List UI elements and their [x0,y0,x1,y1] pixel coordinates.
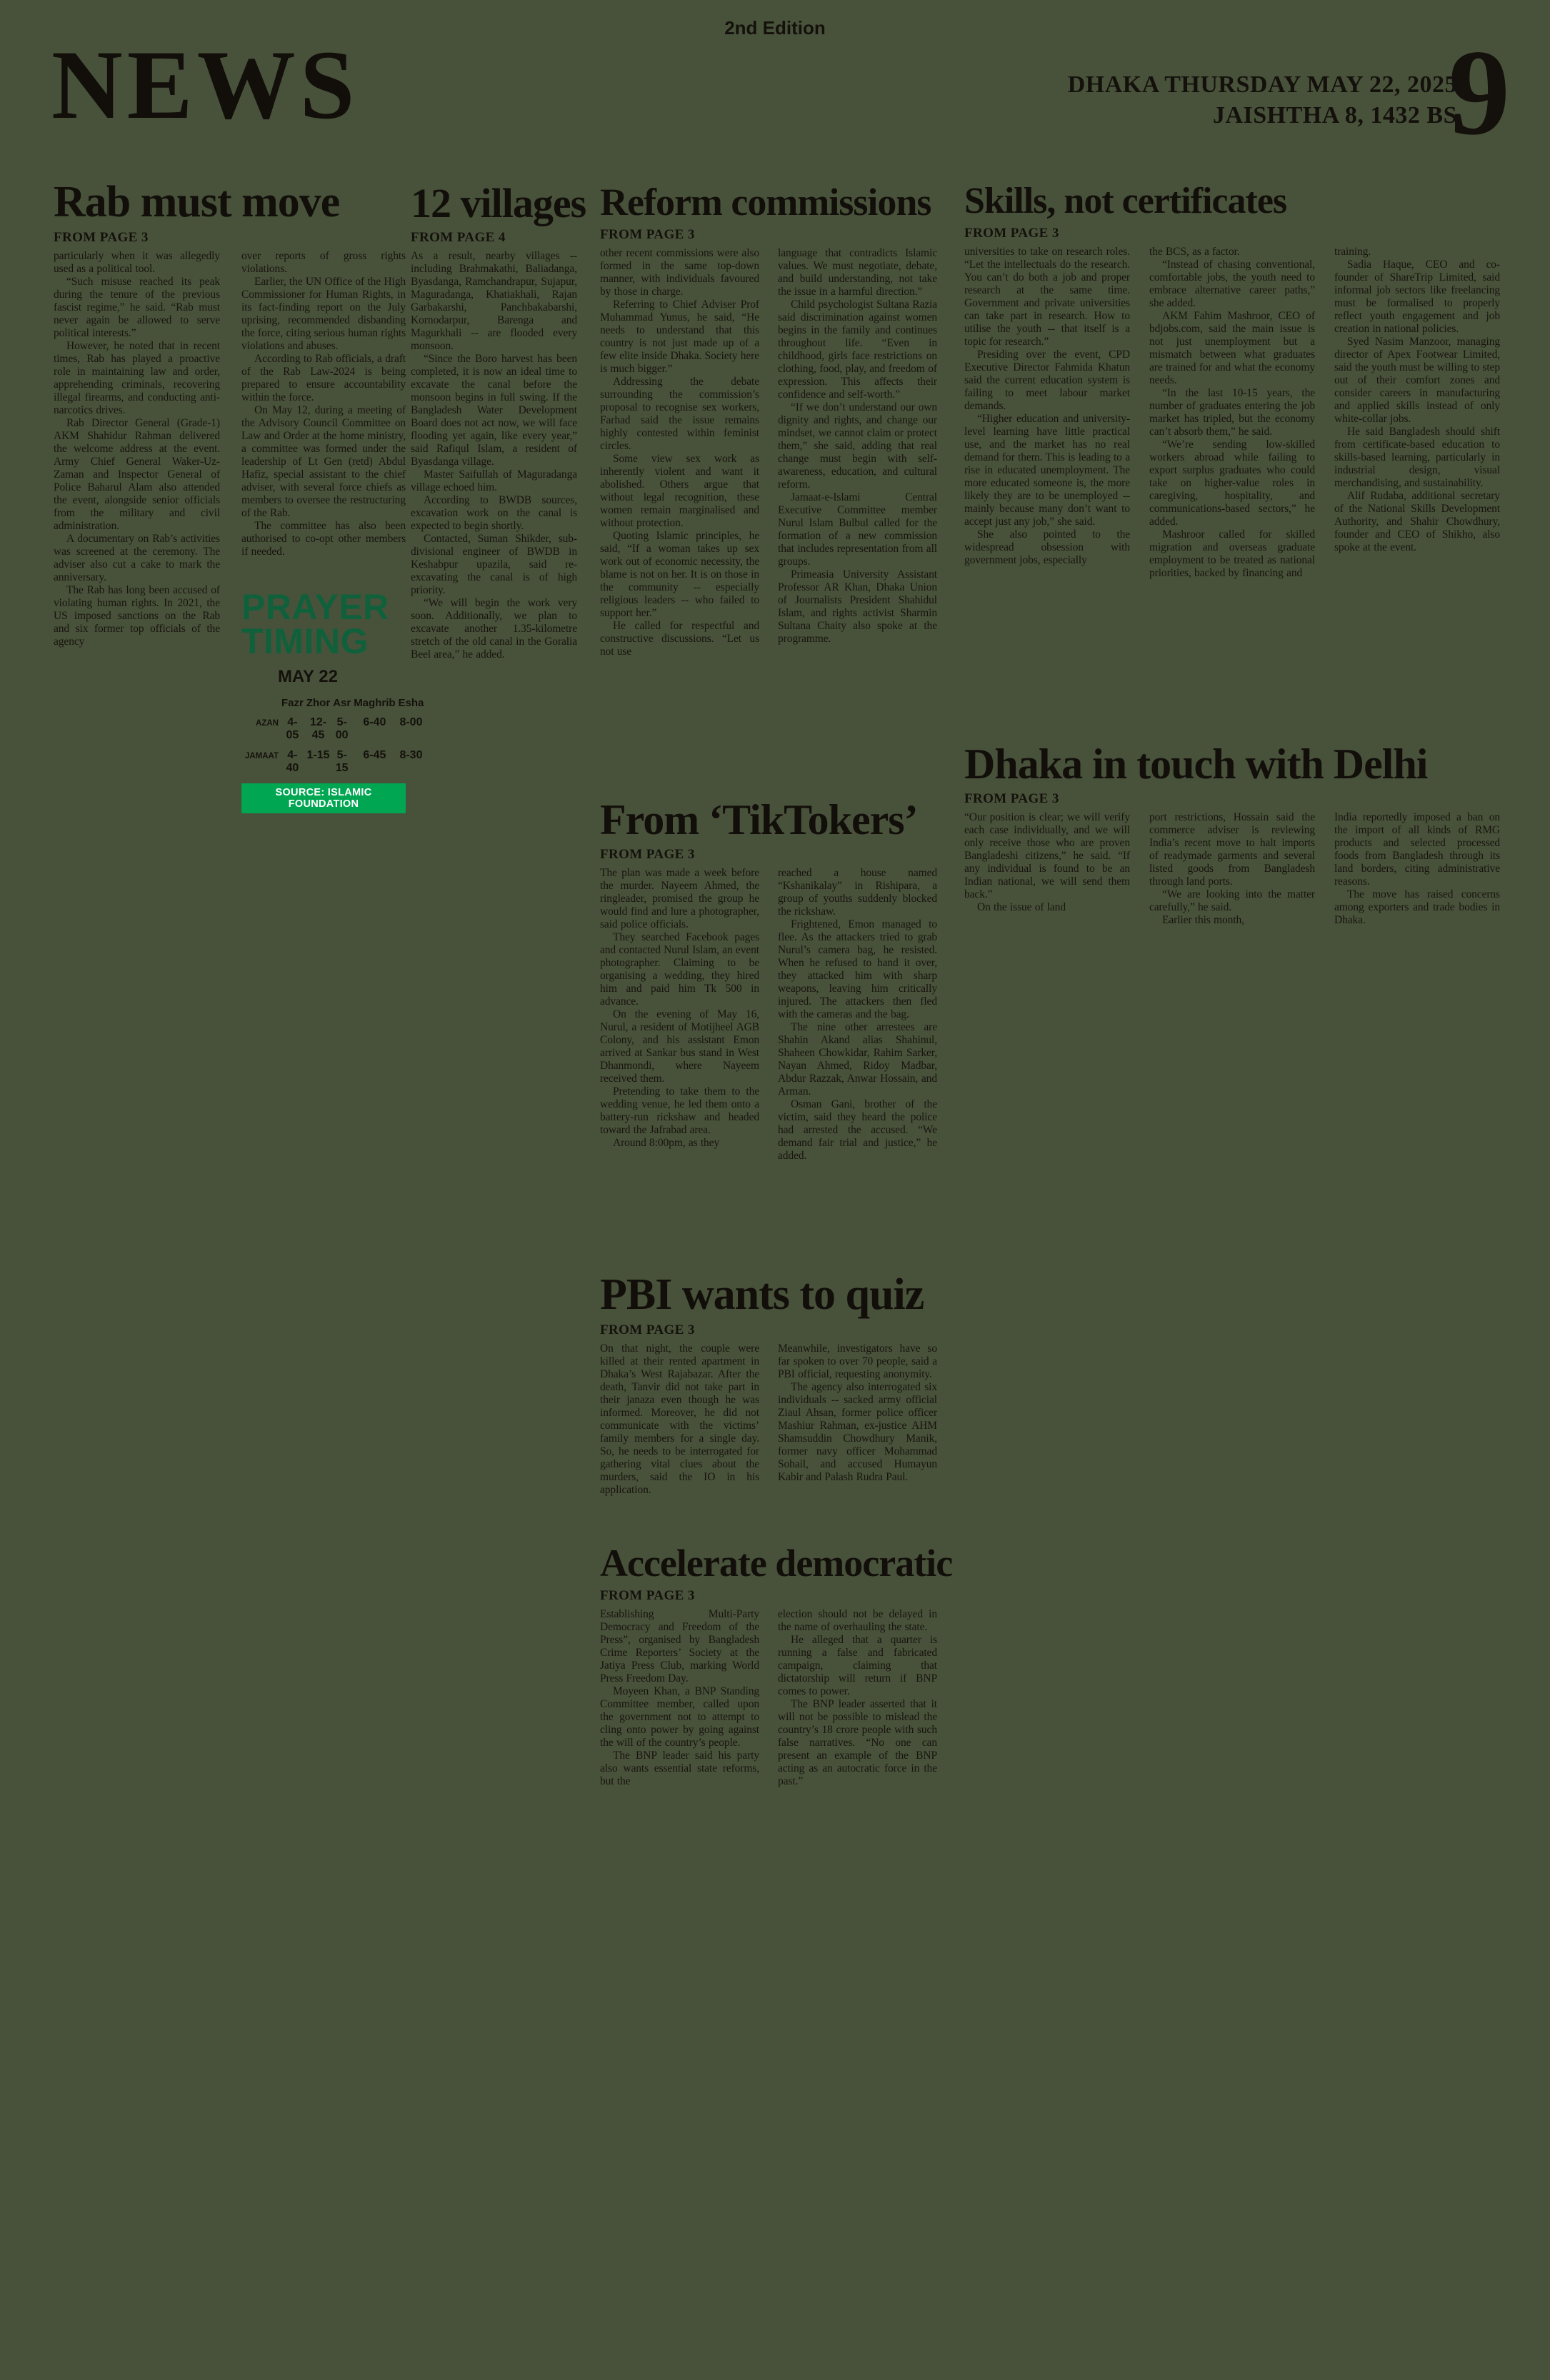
article-column: Establishing Multi-Party Democracy and F… [600,1608,759,1788]
prayer-time-cell: 12-45 [306,716,330,742]
page-number: 9 [1449,31,1510,154]
article-column: port restrictions, Hossain said the comm… [1149,811,1315,927]
article-accelerate-democratic: Accelerate democratic FROM PAGE 3 Establ… [600,1544,937,1788]
article-title: Reform commissions [600,183,937,221]
article-title: From ‘TikTokers’ [600,798,937,841]
article-title: 12 villages [411,183,579,224]
prayer-row-label: JAMAAT [241,752,279,760]
dateline-date: DHAKA THURSDAY MAY 22, 2025 [1068,70,1457,101]
from-page-label: FROM PAGE 3 [600,847,937,863]
article-column: the BCS, as a factor.“Instead of chasing… [1149,246,1315,580]
article-pbi-wants-to-quiz: PBI wants to quiz FROM PAGE 3 On that ni… [600,1272,937,1497]
article-column: “Our position is clear; we will verify e… [964,811,1130,914]
prayer-col-header: Fazr [281,697,304,709]
article-column: training.Sadia Haque, CEO and co-founder… [1334,246,1500,554]
prayer-source-bar: SOURCE: ISLAMIC FOUNDATION [241,783,406,813]
article-column: The plan was made a week before the murd… [600,867,759,1150]
from-page-label: FROM PAGE 3 [964,791,1501,807]
prayer-timing-box: PRAYER TIMING MAY 22 Fazr Zhor Asr Maghr… [241,590,406,813]
article-title: PBI wants to quiz [600,1272,937,1317]
article-column: reached a house named “Kshanikalay” in R… [778,867,937,1163]
prayer-col-header: Asr [333,697,351,709]
prayer-time-cell: 6-40 [354,716,395,729]
prayer-col-header: Maghrib [354,697,395,709]
prayer-time-cell: 5-00 [333,716,351,742]
prayer-row-label: AZAN [241,719,279,728]
article-from-tiktokers: From ‘TikTokers’ FROM PAGE 3 The plan wa… [600,798,937,1163]
dateline-bangla-date: JAISHTHA 8, 1432 BS [1068,101,1457,131]
article-dhaka-in-touch-with-delhi: Dhaka in touch with Delhi FROM PAGE 3 “O… [964,743,1501,927]
from-page-label: FROM PAGE 3 [964,226,1501,241]
from-page-label: FROM PAGE 4 [411,230,579,246]
prayer-col-header: Esha [399,697,424,709]
article-column: universities to take on research roles. … [964,246,1130,567]
article-12-villages: 12 villages FROM PAGE 4 As a result, nea… [411,183,579,661]
article-column: over reports of gross rights violations.… [241,250,406,558]
prayer-table: Fazr Zhor Asr Maghrib Esha AZAN 4-05 12-… [241,697,406,775]
article-title: Skills, not certificates [964,183,1501,220]
article-column: Meanwhile, investigators have so far spo… [778,1342,937,1484]
article-column: As a result, nearby villages -- includin… [411,250,577,661]
article-title: Rab must move [54,180,411,224]
prayer-time-cell: 8-30 [399,749,424,762]
prayer-time-cell: 8-00 [399,716,424,729]
article-column: particularly when it was allegedly used … [54,250,220,648]
article-rab-must-move: Rab must move FROM PAGE 3 particularly w… [54,180,411,813]
article-title: Dhaka in touch with Delhi [964,743,1501,785]
prayer-title-line1: PRAYER [241,590,406,624]
from-page-label: FROM PAGE 3 [600,1588,937,1604]
article-column: language that contradicts Islamic values… [778,247,937,646]
prayer-col-header: Zhor [306,697,330,709]
prayer-time-cell: 4-05 [281,716,304,742]
prayer-time-cell: 5-15 [333,749,351,775]
article-column: On that night, the couple were killed at… [600,1342,759,1497]
article-column: election should not be delayed in the na… [778,1608,937,1788]
article-skills-not-certificates: Skills, not certificates FROM PAGE 3 uni… [964,183,1501,580]
article-column: other recent commissions were also forme… [600,247,759,658]
article-reform-commissions: Reform commissions FROM PAGE 3 other rec… [600,183,937,658]
from-page-label: FROM PAGE 3 [600,227,937,243]
prayer-title-line2: TIMING [241,624,406,658]
article-column: India reportedly imposed a ban on the im… [1334,811,1500,927]
article-title: Accelerate democratic [600,1544,937,1582]
section-masthead: NEWS [51,36,359,134]
from-page-label: FROM PAGE 3 [54,230,411,246]
from-page-label: FROM PAGE 3 [600,1322,937,1338]
newspaper-page: { "page": { "edition": "2nd Edition", "s… [0,0,1550,2380]
prayer-time-cell: 1-15 [306,749,330,762]
prayer-time-cell: 4-40 [281,749,304,775]
prayer-time-cell: 6-45 [354,749,395,762]
dateline: DHAKA THURSDAY MAY 22, 2025 JAISHTHA 8, … [1068,70,1457,131]
prayer-date: MAY 22 [241,667,406,687]
